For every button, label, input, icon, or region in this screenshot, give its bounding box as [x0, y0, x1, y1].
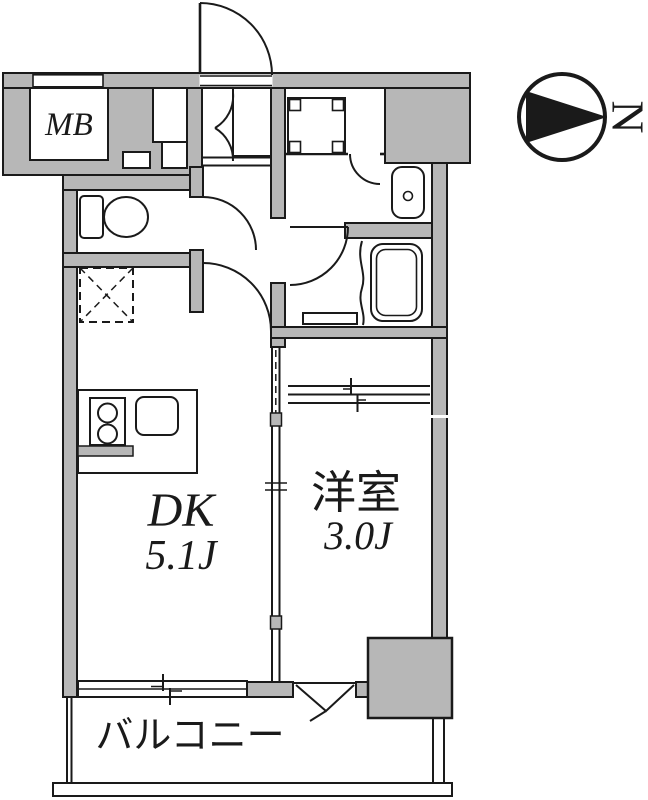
pillar [368, 638, 452, 718]
wall-dk-bottom [247, 682, 293, 697]
stove-burner-1 [98, 404, 117, 423]
wall-right [432, 163, 447, 638]
balcony-slab [53, 783, 452, 796]
washroom-door-swing [290, 227, 348, 285]
balcony-opening [293, 683, 356, 721]
balcony-label: バルコニー [95, 715, 284, 757]
dk-label: DK [147, 484, 218, 537]
shoe-cabinet-door-top [215, 93, 233, 128]
counter-base-wall [78, 446, 133, 456]
entry-storage-tall [153, 88, 187, 142]
toilet-room [80, 196, 256, 250]
dk-door-swing [203, 263, 271, 331]
wall-hall-east-a [271, 88, 285, 218]
closet-sliding-door [288, 378, 430, 412]
compass-arrow-icon [526, 91, 607, 143]
meter-box-label: MB [44, 107, 93, 143]
bath-step [303, 313, 357, 324]
floor-plan-drawing: MB [0, 0, 648, 800]
toilet-tank [80, 196, 103, 238]
stove-burner-2 [98, 425, 117, 444]
entry-storage-box [162, 142, 187, 168]
dk-partition-sliding-door [265, 347, 287, 682]
right-wall-joint [431, 415, 448, 418]
wall-west-room-bottom-stub [356, 682, 368, 697]
sink [136, 397, 178, 435]
meter-box: MB [30, 88, 108, 160]
meter-box-louver [33, 75, 103, 87]
wall-top-right-block [385, 88, 470, 163]
western-room-label: 洋室 [311, 468, 401, 518]
toilet-bowl [104, 197, 148, 237]
compass-north-label: N [603, 100, 648, 133]
entrance-door-swing [200, 3, 272, 75]
wall-hall-west-b [190, 250, 203, 312]
balcony-sliding-window [78, 674, 247, 705]
wall-bath-bottom [271, 327, 447, 338]
basin-drain [404, 192, 413, 201]
entry-storage-small [123, 152, 150, 168]
bathtub-inner [377, 250, 417, 316]
western-room-size-label: 3.0J [323, 513, 394, 558]
wall-wc-top [63, 175, 203, 190]
kitchen [78, 390, 197, 473]
room-labels: DK 5.1J 洋室 3.0J バルコニー [95, 468, 401, 757]
refrigerator-space [80, 268, 133, 322]
shoe-cabinet [233, 88, 271, 156]
north-compass: N [519, 74, 648, 160]
shoe-cabinet-door-bottom [215, 128, 233, 161]
bath-folding-door [360, 241, 363, 325]
wall-hall-west-a [190, 167, 203, 197]
dk-size-label: 5.1J [145, 533, 219, 579]
washer-door-swing [350, 154, 380, 184]
wc-door-swing [203, 197, 256, 250]
wall-wc-bottom [63, 253, 203, 267]
floor-plan-page: MB [0, 0, 648, 800]
